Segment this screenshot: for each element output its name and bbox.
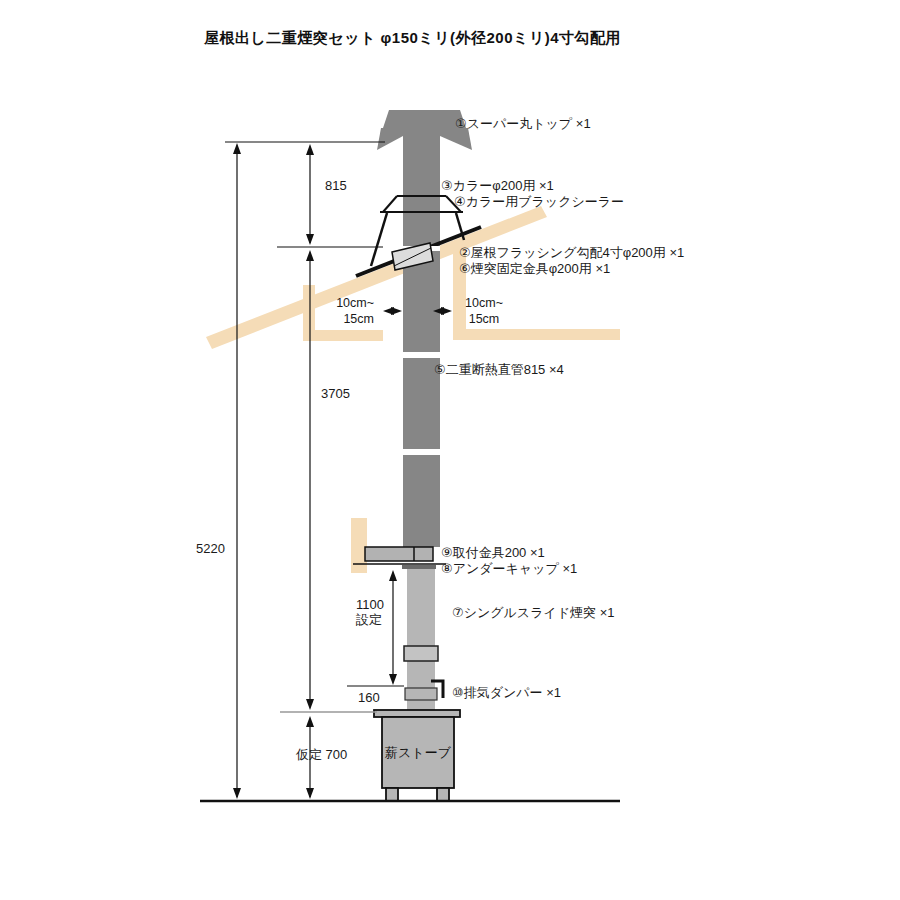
label-top-cap: ①スーパー丸トップ ×1 bbox=[455, 116, 591, 131]
chimney-diagram-page: 屋根出し二重煙突セット φ150ミリ(外径200ミリ)4寸勾配用 ①スーパー丸ト… bbox=[0, 0, 900, 900]
dim-upper: 815 bbox=[325, 178, 347, 193]
double-wall-pipe bbox=[403, 127, 440, 547]
clearance-left-line1: 10cm~ bbox=[316, 295, 374, 311]
clearance-right: 10cm~ 15cm bbox=[456, 295, 512, 327]
label-collar: ③カラーφ200用 ×1 bbox=[441, 178, 554, 193]
dim-stove-height: 仮定 700 bbox=[296, 746, 347, 764]
page-title: 屋根出し二重煙突セット φ150ミリ(外径200ミリ)4寸勾配用 bbox=[204, 29, 621, 48]
roof-rafter bbox=[206, 206, 547, 349]
dim-slide-value: 1100 bbox=[356, 597, 384, 612]
label-fixing-bracket: ⑥煙突固定金具φ200用 ×1 bbox=[459, 261, 610, 276]
label-sealer: ④カラー用ブラックシーラー bbox=[454, 194, 624, 209]
label-flashing: ②屋根フラッシング勾配4寸φ200用 ×1 bbox=[459, 245, 684, 260]
label-slide-pipe: ⑦シングルスライド煙突 ×1 bbox=[452, 605, 615, 620]
pipe-segment-3 bbox=[403, 455, 440, 547]
dim-total: 5220 bbox=[196, 541, 225, 556]
dim-slide: 1100 設定 bbox=[356, 597, 384, 627]
roof-right-sill bbox=[453, 329, 620, 340]
roof-left-sill bbox=[303, 330, 383, 341]
dim-middle: 3705 bbox=[321, 386, 350, 401]
cap-hat bbox=[383, 110, 466, 128]
label-mount-bracket: ⑨取付金具200 ×1 bbox=[441, 545, 545, 560]
clearance-left: 10cm~ 15cm bbox=[316, 295, 374, 327]
stove-top-plate bbox=[374, 710, 460, 717]
label-under-cap: ⑧アンダーキャップ ×1 bbox=[441, 561, 577, 576]
pipe-segment-1 bbox=[403, 127, 440, 352]
dim-slide-note: 設定 bbox=[356, 612, 384, 627]
mount-bracket bbox=[353, 547, 446, 564]
stove-leg-right bbox=[437, 788, 449, 801]
diagram-canvas bbox=[0, 0, 900, 900]
label-straight-pipe: ⑤二重断熱直管815 ×4 bbox=[434, 362, 564, 377]
clearance-right-line2: 15cm bbox=[456, 311, 512, 327]
cap-skirt-right bbox=[440, 128, 472, 150]
slide-joint-band bbox=[404, 646, 438, 661]
stove-label: 薪ストーブ bbox=[381, 744, 455, 762]
clearance-right-line1: 10cm~ bbox=[456, 295, 512, 311]
dim-damper-offset: 160 bbox=[358, 690, 380, 705]
label-damper: ⑩排気ダンパー ×1 bbox=[452, 685, 561, 700]
clearance-left-line2: 15cm bbox=[316, 311, 374, 327]
cap-skirt-left bbox=[377, 128, 403, 150]
stove-leg-left bbox=[386, 788, 398, 801]
under-cap bbox=[402, 565, 436, 569]
